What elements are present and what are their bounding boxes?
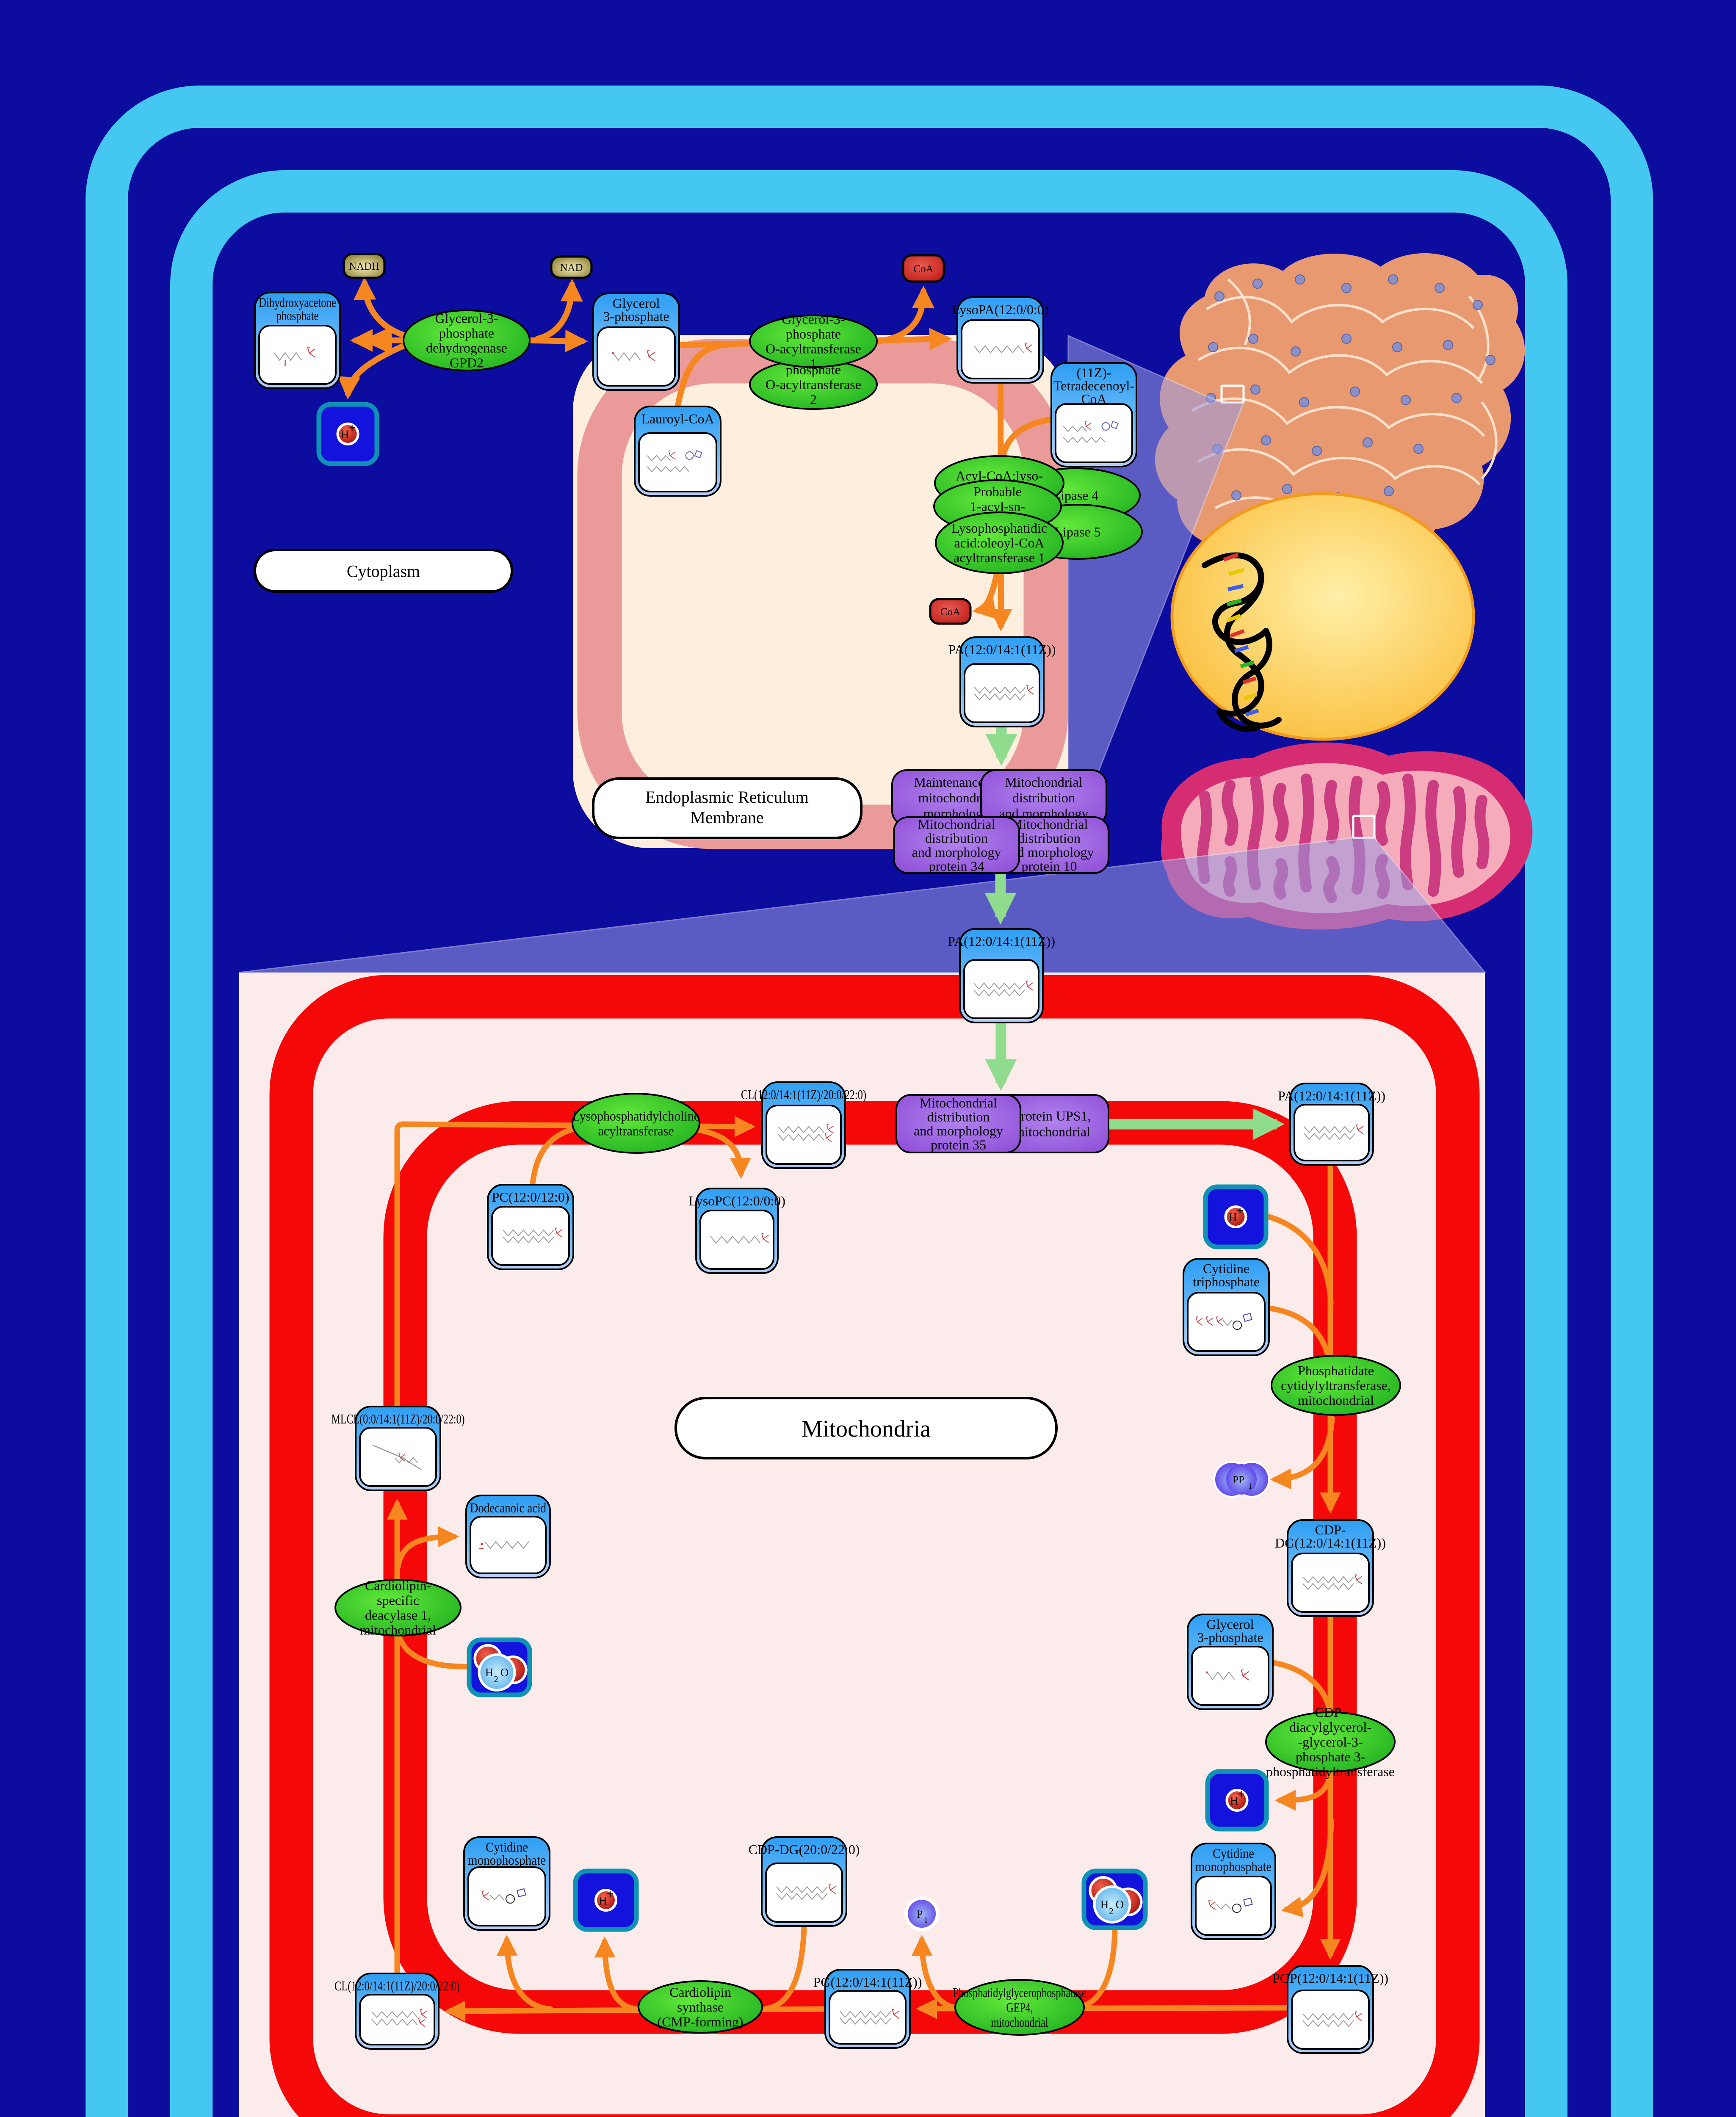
svg-text:+: + [348, 421, 356, 435]
svg-text:phosphate: phosphate [439, 326, 494, 341]
svg-text:synthase: synthase [677, 1999, 724, 2015]
svg-text:i: i [925, 1915, 927, 1925]
svg-text:mitochondrial: mitochondrial [1014, 1124, 1090, 1139]
svg-text:Protein UPS1,: Protein UPS1, [1014, 1108, 1091, 1124]
svg-text:+: + [1238, 1787, 1245, 1801]
svg-text:specific: specific [377, 1593, 419, 1608]
svg-text:phosphate 3-: phosphate 3- [1296, 1749, 1365, 1764]
svg-text:PC(12:0/12:0): PC(12:0/12:0) [492, 1189, 569, 1205]
svg-text:mitochondrial: mitochondrial [991, 2015, 1048, 2030]
svg-text:mitochondrial: mitochondrial [360, 1622, 436, 1638]
svg-text:PP: PP [1233, 1474, 1244, 1486]
svg-text:and morphology: and morphology [912, 845, 1001, 860]
svg-text:2: 2 [1109, 1906, 1114, 1916]
svg-text:-glycerol-3-: -glycerol-3- [1298, 1734, 1363, 1749]
svg-text:Mitochondrial: Mitochondrial [1005, 774, 1083, 790]
svg-text:CoA: CoA [914, 263, 934, 275]
svg-text:O-acyltransferase: O-acyltransferase [766, 341, 861, 357]
svg-text:H: H [1100, 1898, 1109, 1911]
svg-text:mitochondrial: mitochondrial [1298, 1393, 1374, 1408]
svg-text:PA(12:0/14:1(11Z)): PA(12:0/14:1(11Z)) [948, 934, 1055, 949]
svg-text:triphosphate: triphosphate [1193, 1274, 1260, 1289]
svg-text:cytidylyltransferase,: cytidylyltransferase, [1281, 1378, 1391, 1393]
svg-text:Glycerol-3-: Glycerol-3- [782, 312, 845, 327]
svg-text:H: H [341, 428, 349, 441]
svg-text:O: O [500, 1666, 509, 1679]
svg-text:1: 1 [810, 356, 817, 371]
svg-text:acyltransferase: acyltransferase [598, 1123, 674, 1139]
svg-text:LysoPC(12:0/0:0): LysoPC(12:0/0:0) [688, 1193, 785, 1208]
svg-text:CoA: CoA [940, 606, 960, 618]
svg-text:NADH: NADH [349, 261, 379, 272]
svg-text:dehydrogenase: dehydrogenase [426, 340, 507, 356]
svg-text:Mitochondrial: Mitochondrial [918, 817, 995, 832]
svg-text:protein 35: protein 35 [931, 1137, 986, 1152]
svg-text:phosphatidyltransferase: phosphatidyltransferase [1266, 1764, 1395, 1779]
svg-text:CDP-DG(20:0/22:0): CDP-DG(20:0/22:0) [749, 1842, 860, 1857]
svg-text:acyltransferase 1: acyltransferase 1 [954, 550, 1045, 565]
svg-text:Dodecanoic acid: Dodecanoic acid [470, 1500, 546, 1515]
svg-text:Mitochondrial: Mitochondrial [920, 1095, 997, 1111]
svg-text:H: H [1229, 1211, 1237, 1224]
svg-text:CDP-: CDP- [1315, 1705, 1346, 1720]
svg-text:Cytoplasm: Cytoplasm [347, 561, 420, 580]
svg-text:P: P [917, 1909, 923, 1920]
svg-text:3-phosphate: 3-phosphate [1197, 1630, 1263, 1645]
svg-text:DG(12:0/14:1(11Z)): DG(12:0/14:1(11Z)) [1275, 1535, 1386, 1550]
svg-text:deacylase 1,: deacylase 1, [365, 1608, 431, 1623]
svg-text:2: 2 [810, 392, 817, 407]
svg-text:NAD: NAD [560, 262, 583, 274]
svg-text:distribution: distribution [925, 831, 988, 846]
svg-text:Lysophosphatidic: Lysophosphatidic [951, 520, 1047, 536]
svg-text:protein 34: protein 34 [929, 859, 984, 874]
svg-text:3-phosphate: 3-phosphate [603, 309, 669, 324]
svg-text:and morphology: and morphology [914, 1123, 1003, 1139]
svg-text:Endoplasmic Reticulum: Endoplasmic Reticulum [645, 788, 809, 807]
svg-text:Cardiolipin-: Cardiolipin- [365, 1578, 431, 1593]
svg-text:GEP4,: GEP4, [1006, 2000, 1033, 2015]
svg-text:LysoPA(12:0/0:0): LysoPA(12:0/0:0) [952, 302, 1049, 317]
svg-text:phosphate: phosphate [276, 308, 319, 323]
svg-text:Cardiolipin: Cardiolipin [669, 1984, 731, 2000]
svg-text:O-acyltransferase: O-acyltransferase [766, 377, 861, 392]
svg-text:PG(12:0/14:1(11Z)): PG(12:0/14:1(11Z)) [813, 1974, 922, 1990]
svg-text:distribution: distribution [1012, 790, 1075, 805]
svg-text:O: O [1116, 1898, 1124, 1911]
svg-text:Glycerol-3-: Glycerol-3- [435, 311, 498, 326]
svg-text:phosphate: phosphate [786, 326, 841, 342]
svg-text:Mitochondrial: Mitochondrial [1011, 817, 1088, 832]
svg-text:2: 2 [494, 1674, 498, 1684]
svg-text:+: + [606, 1887, 614, 1901]
svg-text:diacylglycerol-: diacylglycerol- [1289, 1719, 1371, 1735]
svg-text:PA(12:0/14:1(11Z)): PA(12:0/14:1(11Z)) [948, 642, 1056, 657]
svg-text:monophosphate: monophosphate [468, 1852, 546, 1868]
svg-text:Mitochondria: Mitochondria [802, 1416, 931, 1442]
svg-text:Lauroyl-CoA: Lauroyl-CoA [641, 411, 714, 426]
svg-text:CL(12:0/14:1(11Z)/20:0/22:0): CL(12:0/14:1(11Z)/20:0/22:0) [334, 1978, 460, 1993]
svg-text:monophosphate: monophosphate [1195, 1859, 1272, 1874]
svg-text:CL(12:0/14:1(11Z)/20:0/22:0): CL(12:0/14:1(11Z)/20:0/22:0) [741, 1087, 866, 1102]
svg-text:distribution: distribution [927, 1109, 990, 1125]
svg-text:Lysophosphatidylcholine: Lysophosphatidylcholine [572, 1108, 699, 1124]
svg-text:acid:oleoyl-CoA: acid:oleoyl-CoA [954, 535, 1045, 550]
svg-text:i: i [1249, 1481, 1252, 1491]
svg-text:H: H [599, 1894, 607, 1907]
svg-text:Membrane: Membrane [690, 808, 763, 827]
svg-text:Probable: Probable [973, 484, 1022, 499]
svg-text:GPD2: GPD2 [450, 355, 484, 370]
svg-text:H: H [485, 1666, 494, 1679]
svg-text:PGP(12:0/14:1(11Z)): PGP(12:0/14:1(11Z)) [1272, 1971, 1388, 1986]
svg-text:MLCL(0:0/14:1(11Z)/20:0/22:0): MLCL(0:0/14:1(11Z)/20:0/22:0) [332, 1411, 465, 1426]
svg-text:H: H [1230, 1794, 1238, 1807]
svg-text:Phosphatidate: Phosphatidate [1298, 1363, 1374, 1378]
svg-text:distribution: distribution [1018, 831, 1081, 846]
svg-text:+: + [1236, 1204, 1244, 1218]
svg-text:protein 10: protein 10 [1022, 859, 1077, 874]
svg-text:PA(12:0/14:1(11Z)): PA(12:0/14:1(11Z)) [1278, 1088, 1385, 1103]
svg-text:(CMP-forming): (CMP-forming) [658, 2014, 744, 2029]
svg-text:Phosphatidylglycerophosphatase: Phosphatidylglycerophosphatase [953, 1985, 1086, 2000]
